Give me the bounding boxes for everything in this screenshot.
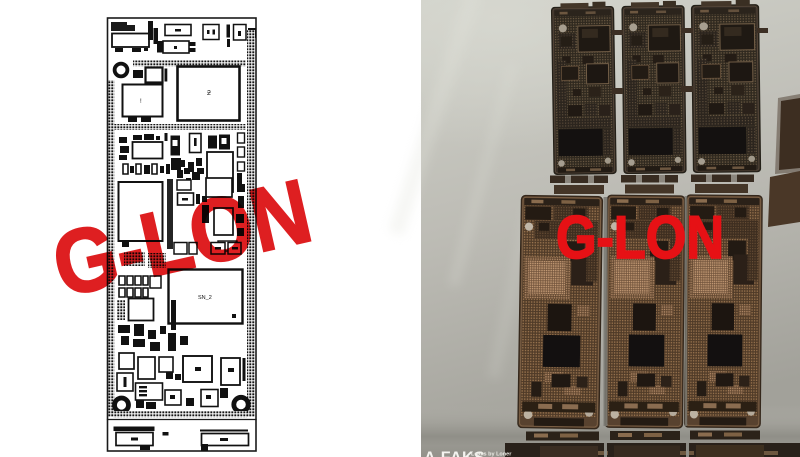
svg-text:SN_2: SN_2 <box>198 295 212 301</box>
svg-text:Leaks by Loner: Leaks by Loner <box>471 452 512 457</box>
svg-text:ƻ: ƻ <box>207 90 211 97</box>
svg-text:G-LON: G-LON <box>556 204 724 271</box>
